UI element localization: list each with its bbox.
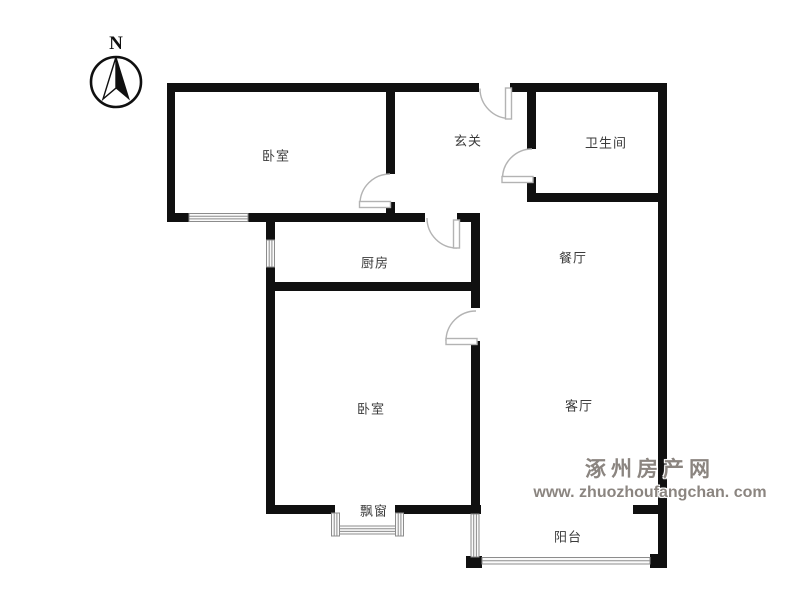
wall-balcony-corner-right [650,554,667,568]
wall-bedroom2-bottom-right [395,505,481,514]
wall-kitchen-bottom [266,282,480,291]
room-label-balcony: 阳台 [554,527,582,546]
watermark: 涿州房产网 www. zhuozhoufangchan. com [523,459,777,502]
door-swing-icon [502,149,533,183]
room-label-kitchen: 厨房 [361,253,389,272]
room-label-bedroom-top: 卧室 [262,146,290,165]
wall-inner-right-lower [471,341,480,513]
wall-top-right [510,83,667,92]
wall-left [167,83,175,222]
window-icon [189,214,248,222]
floorplan-canvas: N 卧室 玄关 卫生间 厨房 餐厅 卧室 客厅 飘窗 阳台 涿州房产网 www.… [0,0,800,600]
room-label-living: 客厅 [565,396,593,415]
door-swing-icon [480,88,512,119]
wall-bathroom-bottom [527,193,667,202]
door-swing-icon [446,311,477,345]
room-label-bay-window: 飘窗 [360,501,388,520]
wall-mid-row-a [167,213,189,222]
room-label-bathroom: 卫生间 [585,133,627,152]
floorplan-drawing [0,0,800,600]
wall-bedroom2-bottom-left [266,505,335,514]
window-icon [471,514,479,557]
room-label-bedroom-bottom: 卧室 [357,399,385,418]
wall-inner-right-upper [471,213,480,308]
door-swing-icon [427,218,460,248]
wall-bedroom1-right-upper [386,92,395,174]
compass-north-label: N [109,33,123,55]
wall-balcony-corner-left [466,556,482,568]
door-swing-icon [360,174,391,208]
watermark-site-name: 涿州房产网 [523,459,777,481]
north-arrow-icon [91,57,141,107]
wall-top-left [167,83,479,92]
wall-living-bottom-stub [633,505,667,514]
room-label-dining: 餐厅 [559,248,587,267]
wall-west-upper [266,213,275,240]
balcony-railing-icon [482,558,650,565]
window-icon [267,240,275,267]
watermark-url: www. zhuozhoufangchan. com [523,484,777,502]
wall-bathroom-left-upper [527,92,536,149]
room-label-hallway: 玄关 [454,131,482,150]
wall-west-lower [266,267,275,513]
